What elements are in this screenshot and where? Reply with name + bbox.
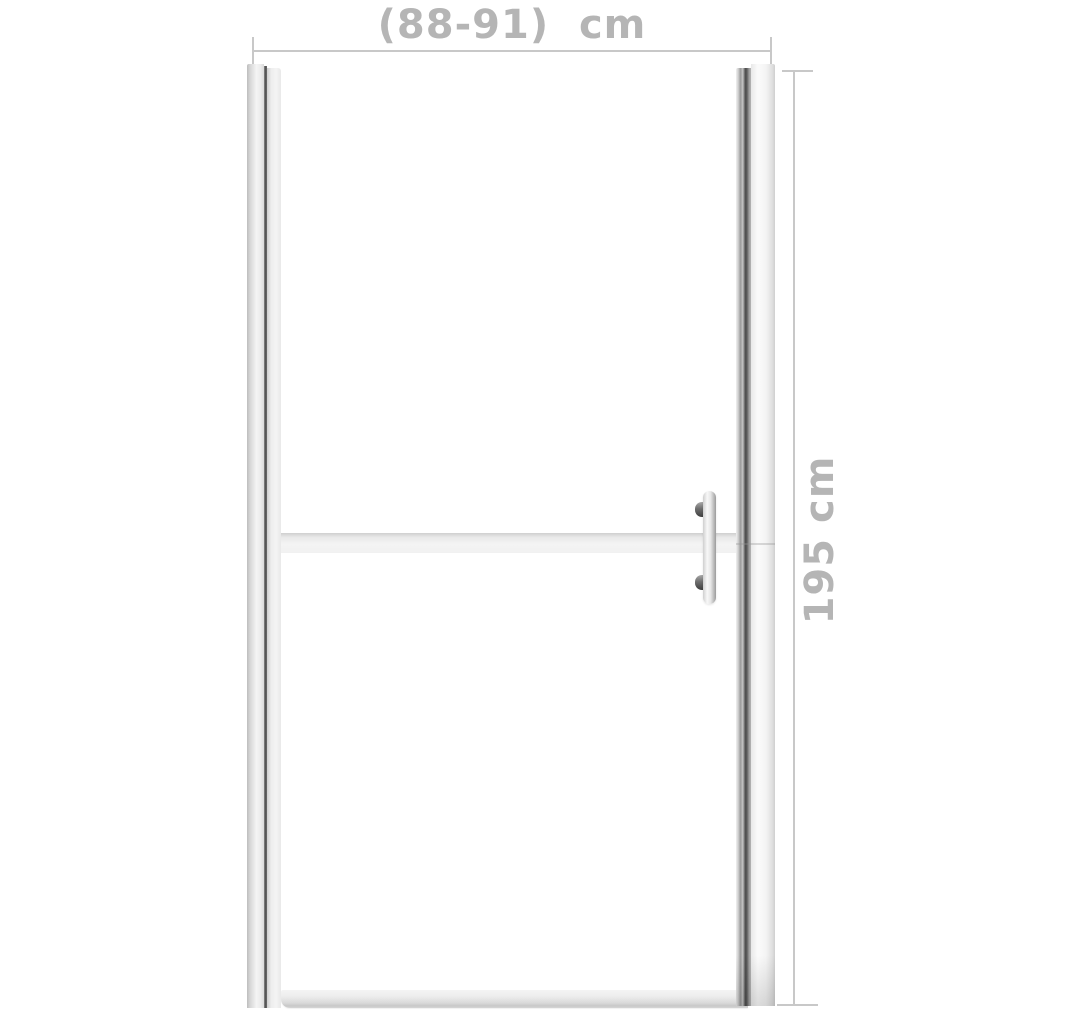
height-dimension-label: 195 cm	[797, 456, 843, 625]
right-post-seam-line	[736, 543, 775, 545]
width-dimension-line	[253, 50, 771, 52]
width-dimension-left-tick	[252, 37, 254, 64]
bottom-rail	[281, 990, 748, 1008]
left-door-stile	[267, 68, 281, 1008]
right-wall-profile	[751, 64, 775, 1006]
right-post-bottom-shade	[736, 955, 775, 1006]
width-dimension-label: (88-91) cm	[253, 2, 771, 48]
right-door-stile	[736, 68, 751, 1006]
door-handle	[703, 491, 716, 604]
frosted-privacy-stripe	[281, 533, 736, 553]
width-dimension-right-tick	[770, 37, 772, 64]
height-dimension-top-cap	[782, 70, 813, 72]
left-wall-profile	[247, 64, 264, 1008]
height-dimension-bottom-cap	[777, 1004, 818, 1006]
shower-door-dimension-diagram: (88-91) cm 195 cm	[0, 0, 1069, 1024]
height-dimension-line	[793, 71, 795, 1006]
